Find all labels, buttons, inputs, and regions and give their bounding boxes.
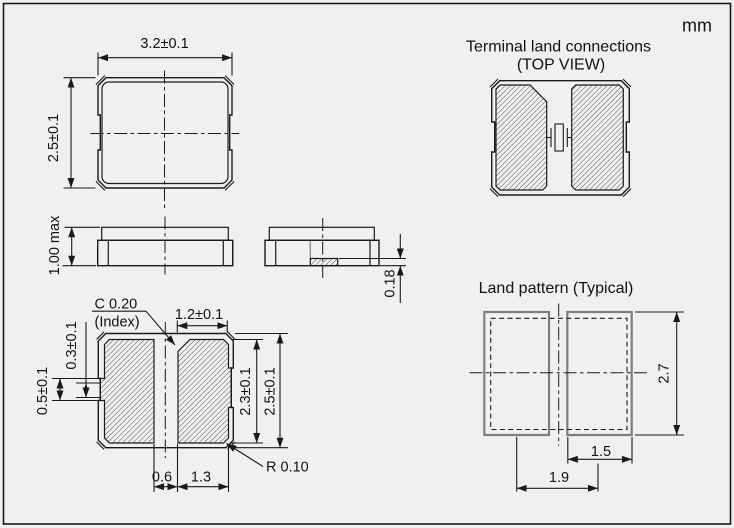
left-terminal-land: [496, 85, 547, 190]
land-pattern-title: Land pattern (Typical): [479, 280, 634, 297]
right-terminal-land: [572, 85, 624, 190]
index-chamfer-note: (Index): [95, 315, 140, 331]
unit-label: mm: [682, 16, 712, 36]
bottom-electrode-pad: [310, 259, 337, 266]
dim-pad-to-edge-label: 1.3: [191, 470, 211, 486]
terminal-view-subtitle: (TOP VIEW): [517, 56, 605, 73]
right-terminal-pad: [178, 340, 231, 444]
dim-land-width-label: 1.5: [591, 444, 611, 460]
dim-bottom-body-width-label: 2.5±0.1: [263, 367, 279, 415]
dim-side-notch-inner-label: 0.3±0.1: [64, 321, 80, 369]
corner-radius-label: R 0.10: [266, 460, 309, 476]
dim-height-max-label: 1.00 max: [47, 215, 63, 275]
dim-body-width-label: 3.2±0.1: [140, 36, 188, 52]
left-terminal-pad: [100, 340, 154, 444]
dim-land-height-label: 2.7: [657, 363, 673, 383]
dim-pad-gap-label: 0.6: [152, 470, 172, 486]
terminal-view-title: Terminal land connections: [466, 38, 651, 55]
index-chamfer-label: C 0.20: [95, 297, 138, 313]
dim-electrode-thickness-label: 0.18: [383, 269, 399, 297]
dim-body-height-label: 2.5±0.1: [46, 114, 62, 162]
engineering-drawing: mm 3.2±0.1 2.5±0.1: [0, 0, 734, 528]
dim-pad-width-label: 1.2±0.1: [175, 307, 223, 323]
dim-side-notch-outer-label: 0.5±0.1: [35, 367, 51, 415]
dim-pad-length-label: 2.3±0.1: [238, 367, 254, 415]
dim-land-pitch-label: 1.9: [549, 470, 569, 486]
